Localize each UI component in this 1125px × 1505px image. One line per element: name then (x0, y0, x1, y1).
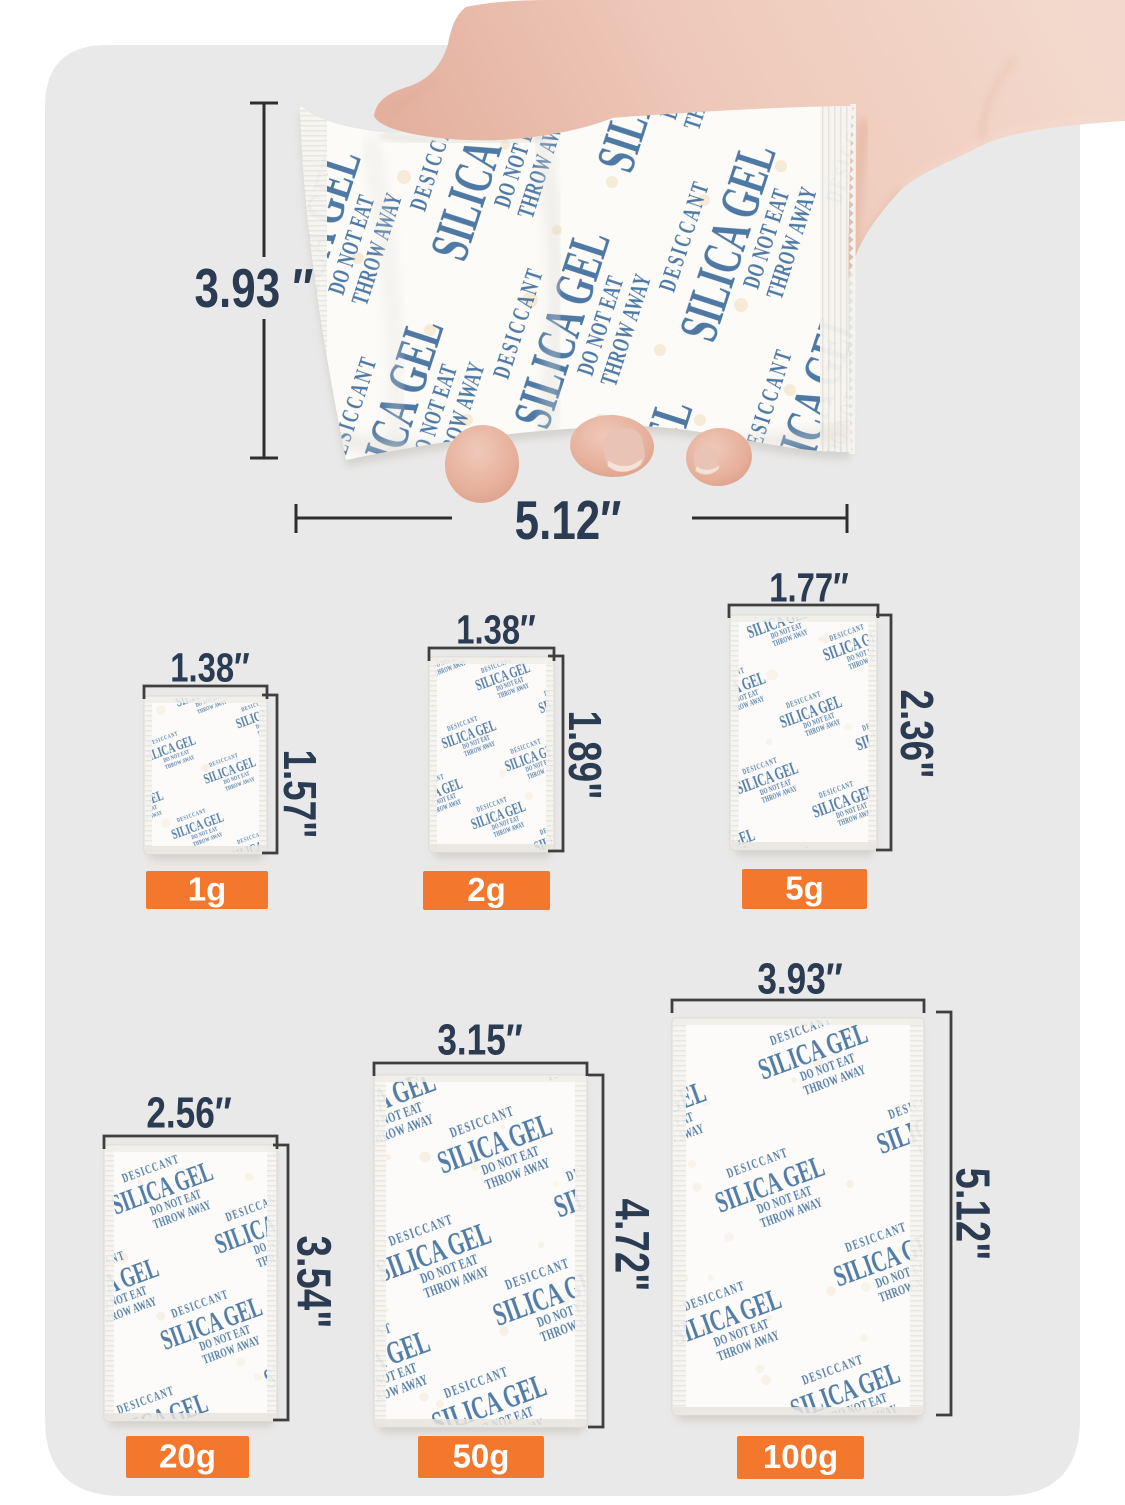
svg-text:3.54": 3.54" (286, 1236, 339, 1329)
svg-text:1.57": 1.57" (274, 749, 326, 838)
svg-text:2.36": 2.36" (891, 689, 943, 778)
svg-text:5.12": 5.12" (945, 1168, 998, 1261)
svg-text:1.77″: 1.77″ (769, 564, 849, 610)
svg-text:20g: 20g (159, 1438, 216, 1475)
svg-text:1.89": 1.89" (559, 710, 611, 799)
svg-text:1.38″: 1.38″ (456, 606, 536, 652)
svg-text:2g: 2g (467, 871, 506, 908)
svg-text:5.12″: 5.12″ (515, 489, 622, 551)
svg-text:2.56″: 2.56″ (146, 1089, 231, 1138)
svg-text:4.72": 4.72" (604, 1199, 657, 1292)
svg-text:3.93 ″: 3.93 ″ (195, 257, 314, 319)
svg-text:1g: 1g (188, 871, 227, 908)
svg-text:3.93″: 3.93″ (757, 955, 842, 1004)
svg-text:3.15″: 3.15″ (437, 1016, 522, 1065)
svg-text:50g: 50g (453, 1438, 510, 1475)
svg-text:5g: 5g (785, 870, 824, 907)
svg-text:100g: 100g (763, 1438, 838, 1475)
svg-text:1.38″: 1.38″ (170, 644, 250, 690)
